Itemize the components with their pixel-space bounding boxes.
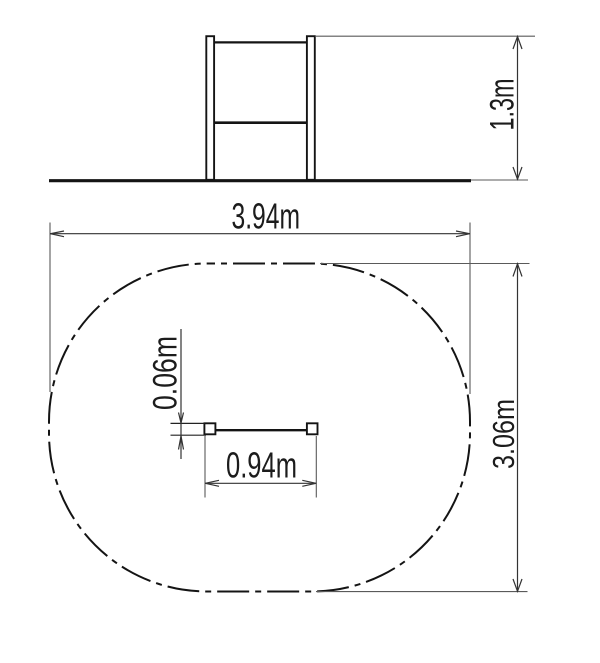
svg-text:3.94m: 3.94m: [232, 196, 301, 237]
svg-text:0.94m: 0.94m: [226, 445, 297, 486]
svg-text:3.06m: 3.06m: [486, 399, 521, 469]
svg-text:0.06m: 0.06m: [146, 336, 184, 410]
svg-text:1.3m: 1.3m: [484, 79, 522, 131]
